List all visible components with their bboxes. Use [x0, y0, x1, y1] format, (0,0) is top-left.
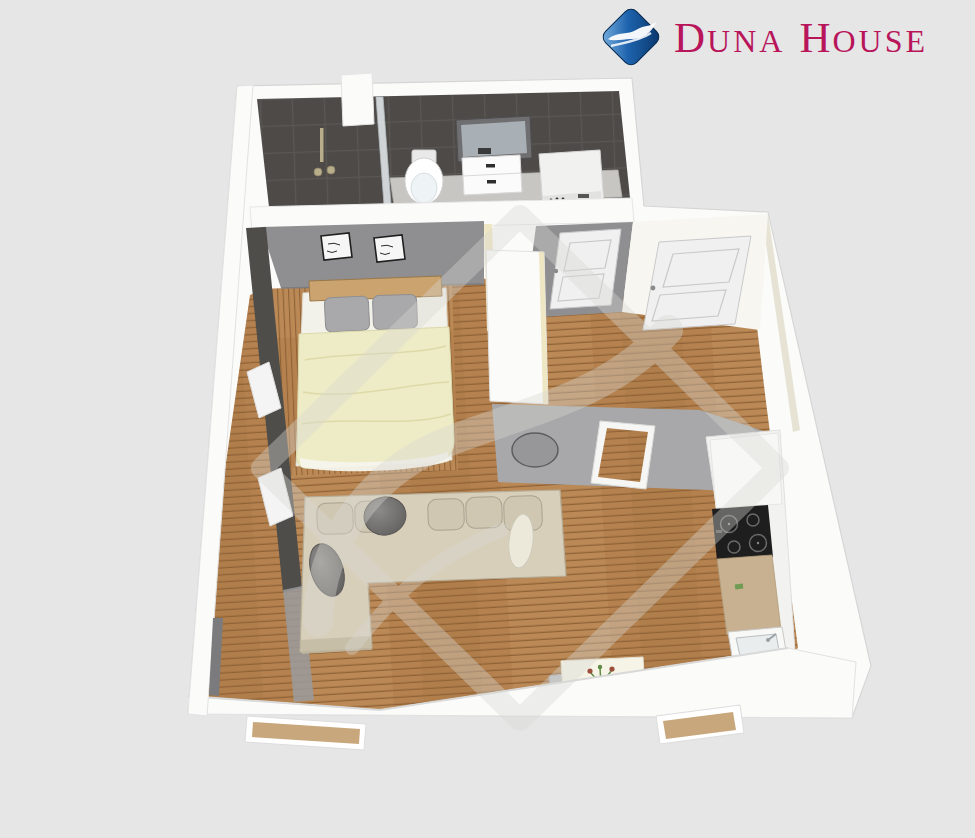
sponge — [735, 584, 743, 590]
shower-wall — [341, 73, 374, 126]
kitchen-counter — [717, 555, 781, 635]
door-handle — [651, 286, 656, 291]
logo-word1-initial: D — [674, 16, 707, 59]
duna-house-logo: Duna House — [598, 2, 928, 72]
logo-word2-initial: H — [799, 16, 832, 59]
round-rug — [512, 433, 558, 467]
picture-frame — [374, 235, 405, 262]
wardrobe — [486, 250, 548, 404]
logo-word1-rest: una — [707, 25, 785, 57]
logo-word2-rest: ouse — [832, 25, 928, 57]
page: Duna House — [0, 0, 975, 838]
interior-door — [643, 236, 751, 330]
door-handle — [554, 269, 558, 273]
logo-diamond-icon — [598, 2, 664, 72]
wall-tv — [456, 116, 532, 162]
bed-pillow — [324, 296, 370, 332]
picture-frame — [321, 233, 352, 260]
window-opening — [245, 716, 366, 750]
sofa-cushion — [465, 496, 502, 528]
sofa-cushion — [427, 498, 464, 530]
floorplan-3d-render — [0, 0, 975, 838]
logo-text: Duna House — [674, 16, 928, 59]
doorway-opening — [591, 421, 655, 489]
